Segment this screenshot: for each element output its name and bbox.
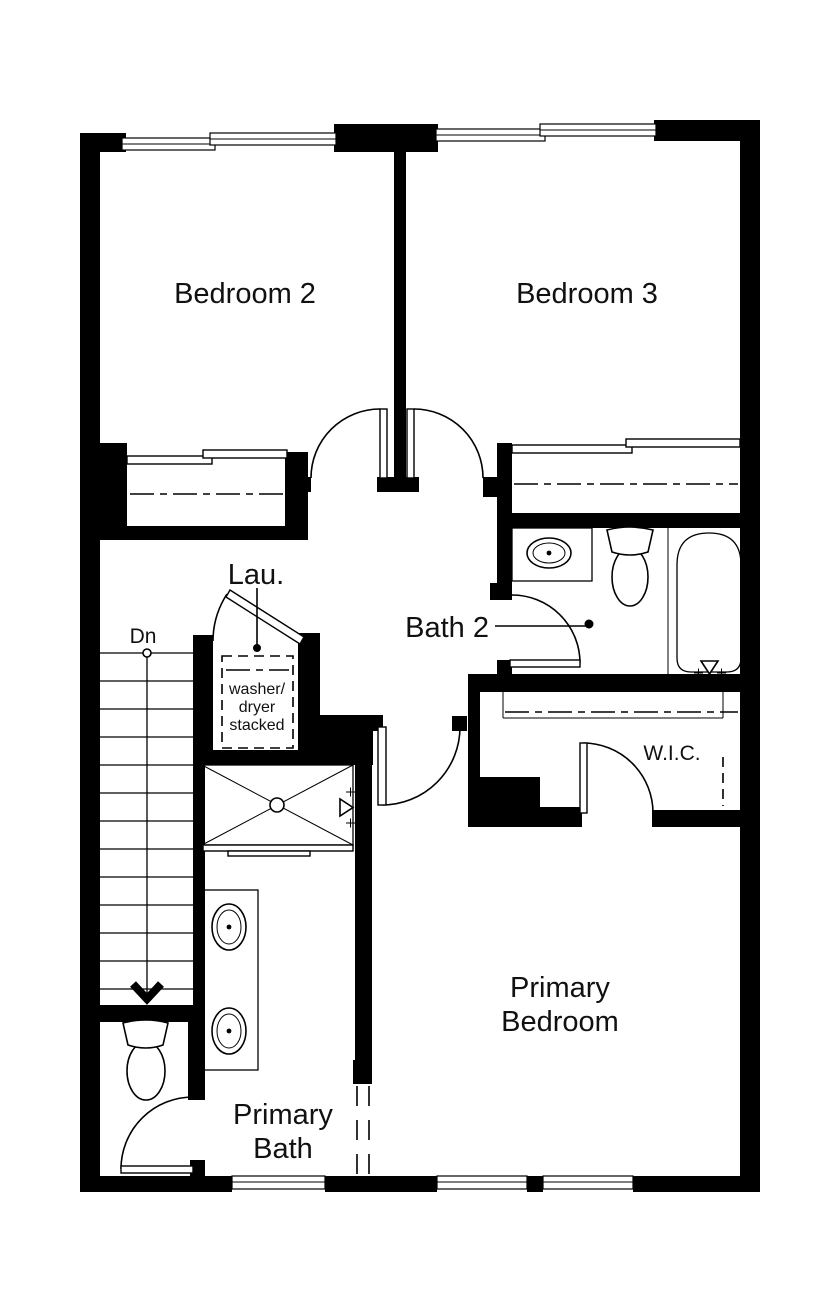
primary-bedroom-label-line1: Primary (510, 972, 610, 1004)
wall-top-center (334, 124, 438, 152)
toilet-nook-door (121, 1097, 193, 1173)
washer-label-line2: dryer (239, 699, 276, 716)
primary-bedroom-window-2 (543, 1176, 633, 1189)
wall-left (80, 133, 100, 1192)
wic-label: W.I.C. (643, 742, 700, 765)
washer-label-line3: stacked (229, 717, 284, 734)
washer-label-line1: washer/ (228, 681, 286, 698)
wall-laundry-west (193, 635, 213, 765)
wall-shower-north (193, 750, 373, 765)
wall-bottom-1 (80, 1176, 232, 1192)
wall-closet2-south (80, 526, 308, 540)
bath2-leader (495, 620, 594, 629)
wic-door (580, 743, 653, 813)
bedroom3-window (436, 124, 656, 141)
stairs-down-arrow (133, 649, 161, 999)
primary-bath-label-line1: Primary (233, 1099, 333, 1131)
wall-wic-west (468, 690, 480, 782)
wall-pbed-west (355, 765, 372, 1082)
primary-bath-label-line2: Bath (253, 1133, 313, 1165)
wall-right (740, 120, 760, 1192)
wall-door-sill (377, 477, 419, 492)
bedroom3-label: Bedroom 3 (516, 278, 658, 310)
floor-plan-page: Bedroom 2 Bedroom 3 Lau. Bath 2 washer/ … (0, 0, 840, 1316)
wall-bath2-north (497, 513, 760, 528)
primary-toilet-icon (123, 1020, 168, 1100)
shower-door-panel (228, 851, 310, 856)
laundry-leader (253, 588, 261, 652)
wall-wic-south-1 (540, 807, 582, 827)
primary-vanity-icon (202, 890, 258, 1070)
wall-laundry-east (298, 633, 320, 765)
wall-opening-cap (353, 1060, 372, 1084)
wall-wic-south-2 (652, 810, 760, 827)
bath2-door (510, 595, 580, 667)
wall-bottom-2 (325, 1176, 437, 1192)
wall-closet2-west (80, 443, 127, 538)
wall-bath2-door-stub (490, 583, 512, 600)
bedroom3-closet (512, 439, 740, 484)
stairs-down-label: Dn (130, 625, 157, 648)
primary-bedroom-label-line2: Bedroom (501, 1006, 619, 1038)
bath2-label: Bath 2 (405, 612, 489, 644)
primary-bedroom-door (378, 727, 460, 805)
wall-bottom-3 (527, 1176, 543, 1192)
bedroom3-door (407, 409, 483, 478)
wall-bedroom-divider (394, 145, 406, 492)
wall-bottom-4 (633, 1176, 760, 1192)
wall-wic-sw-block (468, 777, 540, 827)
primary-bath-window (232, 1176, 325, 1189)
primary-bath-opening (357, 1086, 369, 1176)
bedroom2-label: Bedroom 2 (174, 278, 316, 310)
wall-stair-east (193, 765, 205, 1022)
shower-door (203, 845, 353, 851)
primary-bedroom-window-1 (437, 1176, 527, 1189)
laundry-label: Lau. (228, 559, 284, 591)
wall-bath2-south (468, 674, 760, 692)
floor-plan-drawing: Bedroom 2 Bedroom 3 Lau. Bath 2 washer/ … (0, 0, 840, 1316)
bath2-sink-icon (512, 528, 592, 581)
bath2-toilet-icon (607, 527, 653, 606)
bedroom2-door (311, 409, 387, 478)
stairs (100, 649, 193, 999)
bedroom2-closet (127, 450, 287, 494)
bath2-tub-icon (668, 528, 741, 678)
bedroom2-window (122, 133, 336, 150)
shower-icon (202, 765, 355, 856)
laundry-door (213, 590, 304, 644)
